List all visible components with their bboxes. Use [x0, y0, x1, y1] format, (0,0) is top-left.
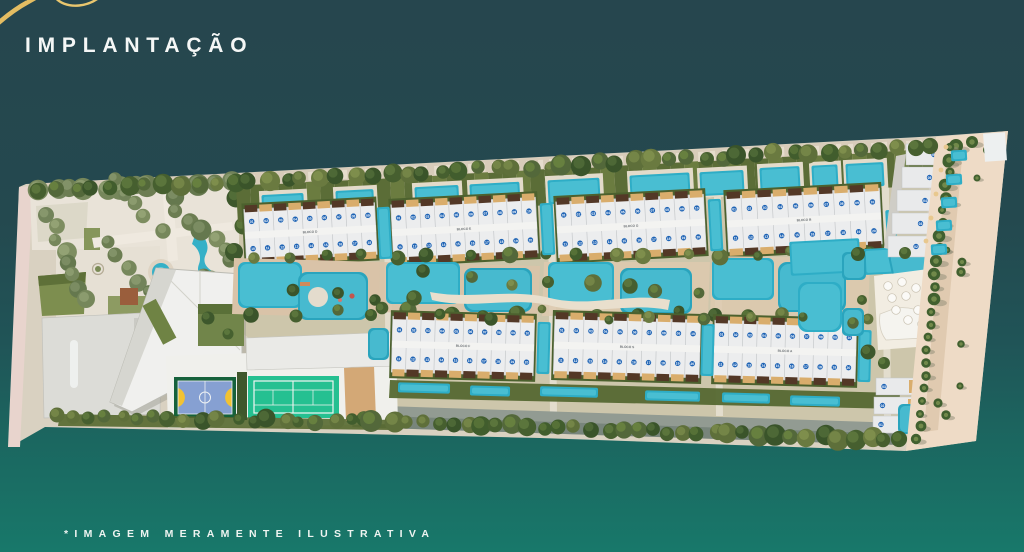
svg-text:20: 20: [872, 229, 876, 233]
svg-text:05: 05: [928, 176, 932, 180]
svg-text:03: 03: [763, 206, 767, 210]
svg-text:18: 18: [818, 365, 822, 369]
svg-text:09: 09: [677, 332, 681, 336]
svg-text:15: 15: [454, 359, 458, 363]
svg-text:04: 04: [440, 214, 444, 218]
svg-text:02: 02: [747, 207, 751, 211]
svg-text:BLOCO F: BLOCO F: [456, 344, 470, 348]
svg-text:14: 14: [439, 358, 443, 362]
svg-text:05: 05: [308, 217, 312, 221]
svg-text:01: 01: [562, 213, 566, 217]
svg-text:07: 07: [647, 331, 651, 335]
svg-text:13: 13: [593, 241, 597, 245]
svg-text:17: 17: [804, 365, 808, 369]
svg-text:18: 18: [367, 241, 371, 245]
svg-text:03: 03: [426, 215, 430, 219]
svg-text:06: 06: [633, 330, 637, 334]
svg-text:02: 02: [574, 329, 578, 333]
svg-text:18: 18: [667, 237, 671, 241]
svg-text:IMPLANTAÇÃO: IMPLANTAÇÃO: [25, 34, 253, 57]
svg-text:02: 02: [734, 333, 738, 337]
svg-text:17: 17: [482, 359, 486, 363]
svg-text:15: 15: [617, 360, 621, 364]
svg-text:10: 10: [527, 209, 531, 213]
svg-text:03: 03: [279, 218, 283, 222]
svg-text:17: 17: [485, 241, 489, 245]
svg-text:12: 12: [413, 244, 417, 248]
svg-text:02: 02: [881, 404, 885, 408]
svg-text:12: 12: [411, 357, 415, 361]
svg-text:10: 10: [847, 336, 851, 340]
svg-text:14: 14: [608, 240, 612, 244]
svg-text:06: 06: [809, 203, 813, 207]
svg-text:11: 11: [397, 357, 401, 361]
svg-text:11: 11: [734, 236, 738, 240]
svg-text:12: 12: [578, 241, 582, 245]
svg-text:20: 20: [847, 366, 851, 370]
svg-text:18: 18: [496, 360, 500, 364]
svg-text:11: 11: [559, 359, 563, 363]
svg-text:09: 09: [512, 210, 516, 214]
svg-text:05: 05: [794, 204, 798, 208]
svg-text:02: 02: [914, 245, 918, 249]
svg-text:08: 08: [665, 208, 669, 212]
svg-text:14: 14: [780, 234, 784, 238]
svg-text:16: 16: [790, 364, 794, 368]
svg-text:19: 19: [510, 360, 514, 364]
svg-text:19: 19: [857, 230, 861, 234]
svg-text:06: 06: [636, 209, 640, 213]
svg-text:10: 10: [870, 200, 874, 204]
svg-text:09: 09: [366, 214, 370, 218]
svg-text:13: 13: [295, 245, 299, 249]
svg-text:02: 02: [411, 215, 415, 219]
svg-text:18: 18: [661, 361, 665, 365]
svg-text:01: 01: [560, 329, 564, 333]
svg-text:01: 01: [732, 207, 736, 211]
svg-text:08: 08: [351, 214, 355, 218]
svg-text:17: 17: [652, 238, 656, 242]
svg-text:01: 01: [720, 333, 724, 337]
svg-text:15: 15: [776, 364, 780, 368]
svg-text:20: 20: [528, 238, 532, 242]
svg-text:19: 19: [682, 236, 686, 240]
svg-text:20: 20: [525, 360, 529, 364]
svg-text:20: 20: [690, 362, 694, 366]
svg-text:07: 07: [824, 203, 828, 207]
svg-text:16: 16: [338, 242, 342, 246]
svg-text:15: 15: [795, 233, 799, 237]
svg-text:03: 03: [919, 222, 923, 226]
svg-text:09: 09: [833, 336, 837, 340]
svg-text:14: 14: [603, 360, 607, 364]
svg-text:16: 16: [468, 359, 472, 363]
svg-text:06: 06: [469, 212, 473, 216]
svg-text:13: 13: [764, 235, 768, 239]
svg-text:10: 10: [525, 331, 529, 335]
svg-text:BLOCO S: BLOCO S: [620, 345, 635, 349]
svg-text:10: 10: [251, 247, 255, 251]
svg-text:11: 11: [266, 246, 270, 250]
svg-text:03: 03: [589, 329, 593, 333]
svg-text:09: 09: [855, 201, 859, 205]
svg-text:14: 14: [761, 364, 765, 368]
svg-text:19: 19: [676, 362, 680, 366]
svg-text:06: 06: [322, 216, 326, 220]
svg-text:12: 12: [749, 235, 753, 239]
svg-text:17: 17: [647, 361, 651, 365]
svg-text:18: 18: [500, 240, 504, 244]
svg-text:BLOCO A: BLOCO A: [778, 349, 793, 353]
svg-text:03: 03: [426, 329, 430, 333]
svg-text:01: 01: [250, 220, 254, 224]
svg-text:08: 08: [840, 202, 844, 206]
svg-text:15: 15: [324, 243, 328, 247]
svg-text:03: 03: [591, 212, 595, 216]
svg-text:04: 04: [604, 330, 608, 334]
svg-text:14: 14: [309, 244, 313, 248]
svg-text:17: 17: [826, 231, 830, 235]
svg-text:08: 08: [497, 331, 501, 335]
svg-text:02: 02: [412, 328, 416, 332]
svg-text:13: 13: [588, 359, 592, 363]
svg-text:07: 07: [483, 212, 487, 216]
svg-text:15: 15: [456, 242, 460, 246]
svg-text:12: 12: [733, 363, 737, 367]
svg-text:15: 15: [622, 239, 626, 243]
svg-text:09: 09: [511, 331, 515, 335]
svg-text:04: 04: [606, 211, 610, 215]
svg-text:13: 13: [747, 363, 751, 367]
svg-text:05: 05: [618, 330, 622, 334]
svg-text:20: 20: [696, 235, 700, 239]
svg-text:03: 03: [882, 385, 886, 389]
svg-text:08: 08: [662, 331, 666, 335]
svg-text:16: 16: [810, 232, 814, 236]
svg-text:11: 11: [719, 363, 723, 367]
svg-text:06: 06: [469, 330, 473, 334]
svg-text:18: 18: [841, 231, 845, 235]
svg-text:12: 12: [280, 245, 284, 249]
svg-text:04: 04: [762, 334, 766, 338]
svg-text:BLOCO D: BLOCO D: [303, 230, 319, 235]
svg-text:07: 07: [337, 215, 341, 219]
svg-text:BLOCO G: BLOCO G: [623, 224, 639, 229]
svg-text:12: 12: [574, 359, 578, 363]
svg-text:02: 02: [577, 212, 581, 216]
svg-text:05: 05: [621, 210, 625, 214]
svg-text:17: 17: [353, 241, 357, 245]
svg-text:11: 11: [398, 245, 402, 249]
svg-text:16: 16: [637, 238, 641, 242]
svg-text:04: 04: [440, 329, 444, 333]
svg-text:06: 06: [791, 334, 795, 338]
svg-text:08: 08: [819, 335, 823, 339]
svg-text:11: 11: [563, 242, 567, 246]
svg-text:07: 07: [805, 335, 809, 339]
svg-text:05: 05: [776, 334, 780, 338]
svg-text:10: 10: [691, 332, 695, 336]
svg-text:19: 19: [832, 366, 836, 370]
svg-text:13: 13: [427, 244, 431, 248]
svg-text:03: 03: [748, 333, 752, 337]
svg-text:09: 09: [680, 207, 684, 211]
svg-text:16: 16: [632, 360, 636, 364]
svg-text:14: 14: [442, 243, 446, 247]
svg-text:16: 16: [471, 241, 475, 245]
svg-text:13: 13: [425, 358, 429, 362]
svg-text:01: 01: [398, 328, 402, 332]
svg-text:04: 04: [778, 205, 782, 209]
svg-text:04: 04: [923, 199, 927, 203]
svg-text:02: 02: [264, 219, 268, 223]
svg-text:BLOCO B: BLOCO B: [797, 218, 813, 223]
svg-text:07: 07: [483, 330, 487, 334]
svg-text:01: 01: [397, 216, 401, 220]
svg-text:05: 05: [454, 330, 458, 334]
svg-text:07: 07: [650, 209, 654, 213]
svg-text:08: 08: [498, 211, 502, 215]
svg-text:BLOCO E: BLOCO E: [457, 227, 472, 232]
svg-text:05: 05: [454, 213, 458, 217]
svg-text:01: 01: [879, 423, 883, 427]
svg-text:19: 19: [514, 239, 518, 243]
svg-text:04: 04: [293, 217, 297, 221]
svg-text:10: 10: [695, 206, 699, 210]
svg-text:*IMAGEM MERAMENTE ILUSTRATIVA: *IMAGEM MERAMENTE ILUSTRATIVA: [64, 528, 435, 540]
